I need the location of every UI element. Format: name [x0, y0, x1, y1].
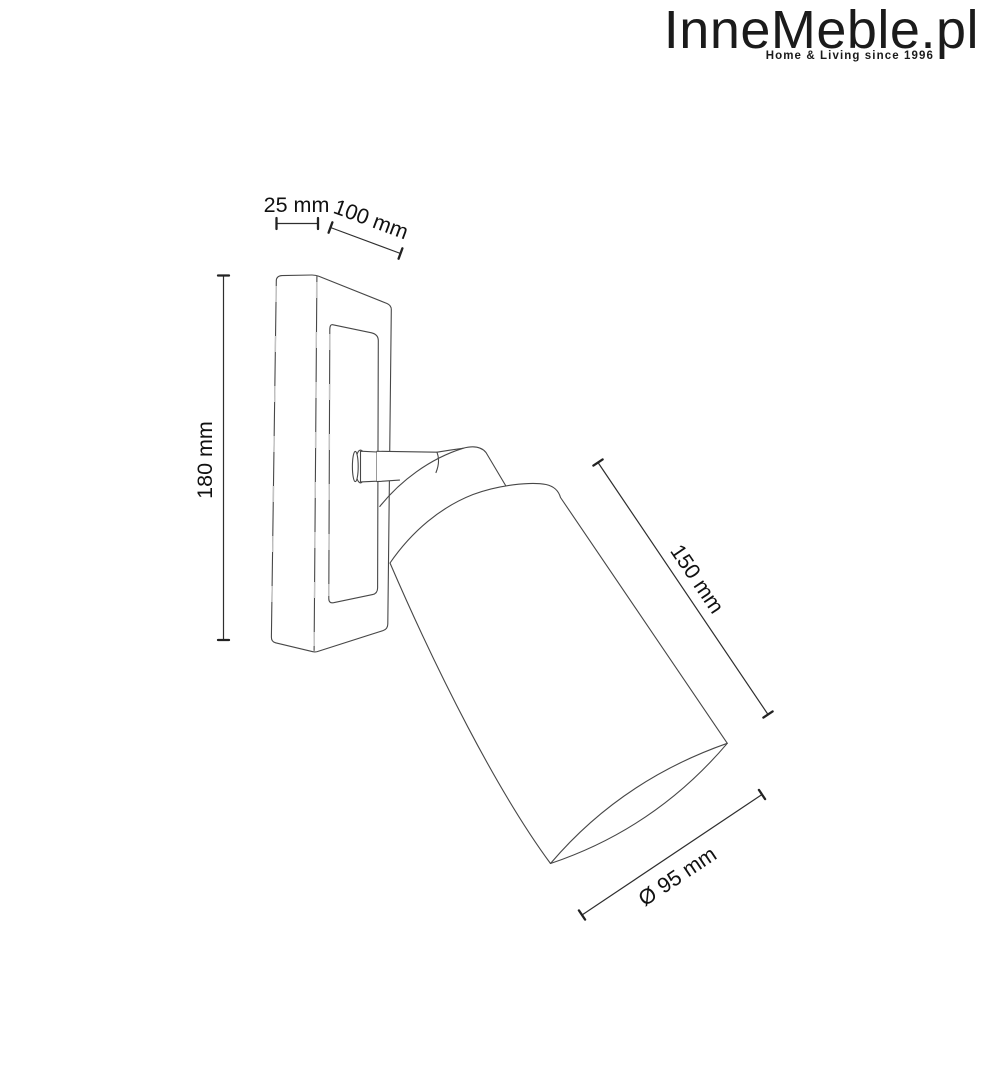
dimension-backplate-height: 180 mm: [193, 276, 229, 641]
dim-label-180mm: 180 mm: [193, 421, 217, 499]
dim-label-150mm: 150 mm: [665, 540, 728, 618]
dimension-backplate-width: 100 mm: [329, 195, 412, 259]
shade-body: [390, 483, 727, 863]
arm-fill: [377, 451, 439, 481]
dimension-backplate-depth: 25 mm: [264, 193, 330, 229]
dim-label-25mm: 25 mm: [264, 193, 330, 217]
lamp-dimension-drawing: 25 mm 100 mm 180 mm 150 mm Ø 95 mm: [0, 0, 1000, 1070]
lamp-shade: [390, 483, 727, 863]
socket-top-edge: [437, 448, 463, 452]
knob-body: [361, 451, 377, 482]
product-diagram-page: InneMeble.pl Home & Living since 1996: [0, 0, 1000, 1070]
dim-label-100mm: 100 mm: [330, 195, 411, 245]
dim-label-95mm: Ø 95 mm: [634, 842, 721, 911]
lamp-arm: [377, 451, 439, 481]
knob-flange-face: [352, 451, 358, 481]
swivel-knob: [352, 450, 377, 483]
